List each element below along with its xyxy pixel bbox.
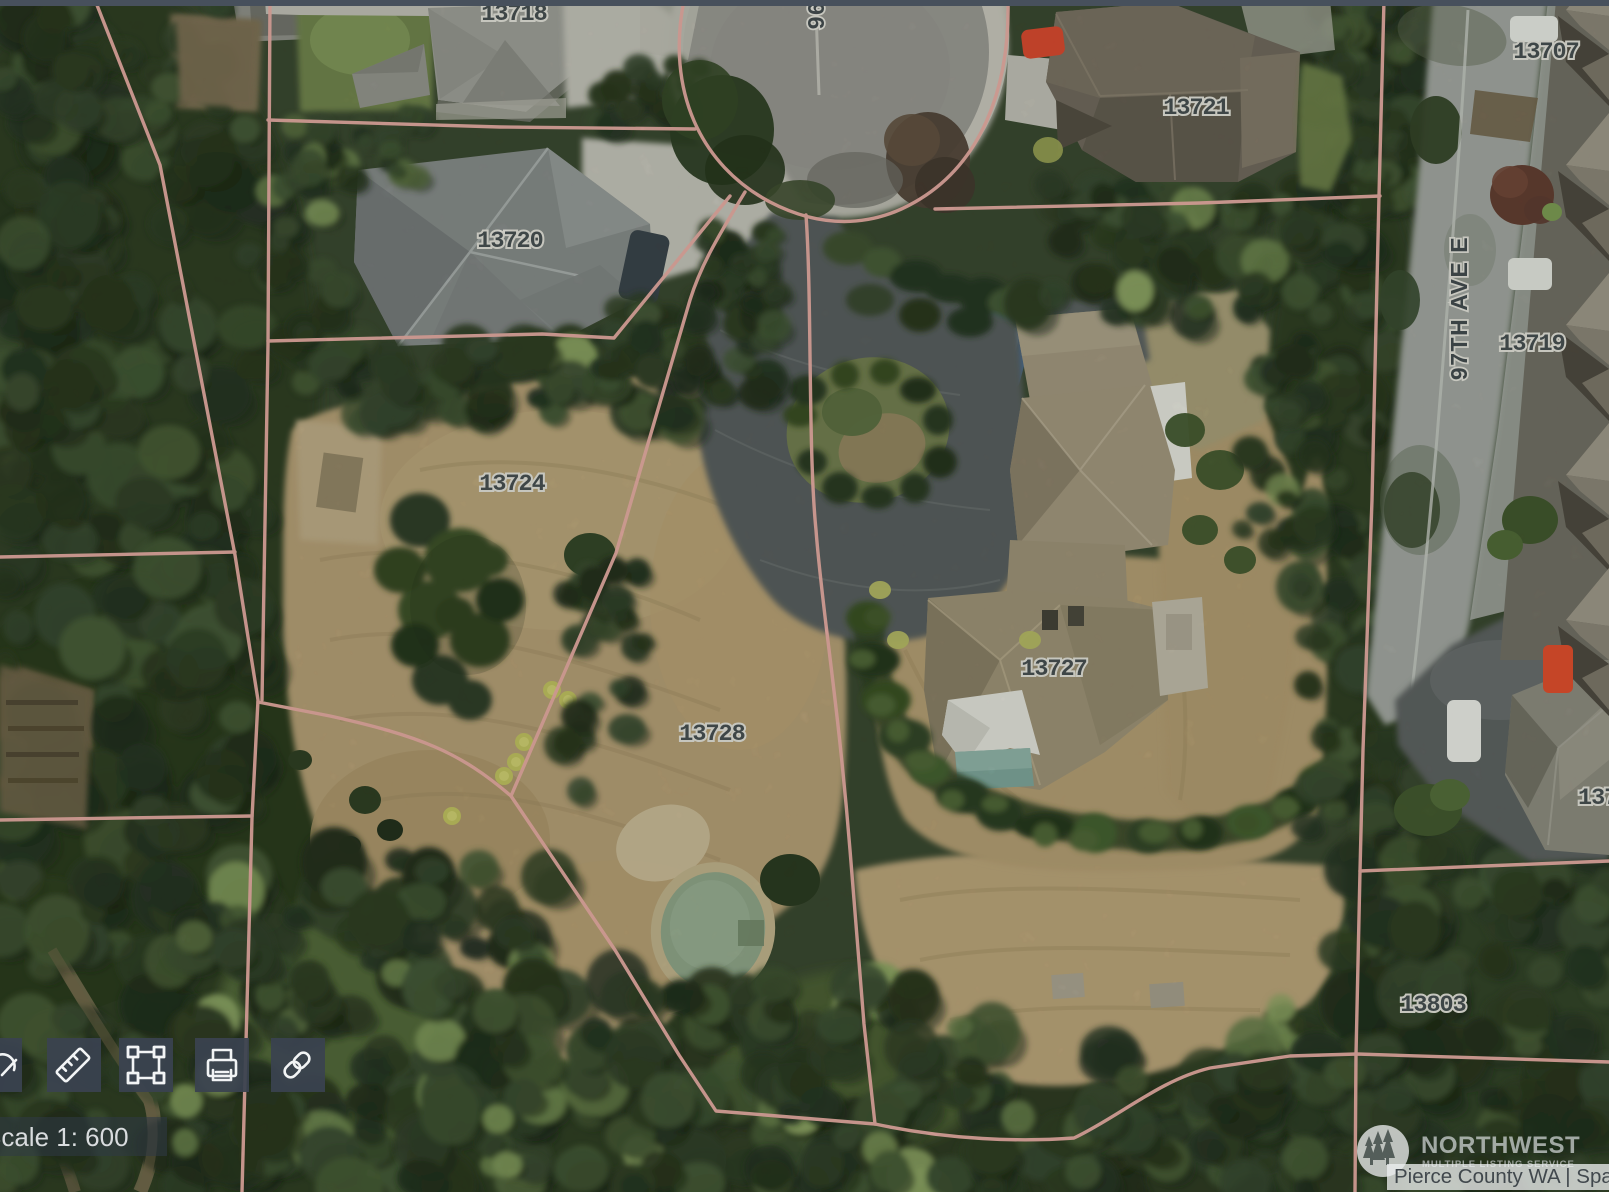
svg-text:Pierce County WA | Spa: Pierce County WA | Spa bbox=[1394, 1165, 1609, 1188]
svg-text:Scale 1: 600: Scale 1: 600 bbox=[0, 1122, 129, 1152]
svg-text:NORTHWEST: NORTHWEST bbox=[1421, 1132, 1580, 1159]
